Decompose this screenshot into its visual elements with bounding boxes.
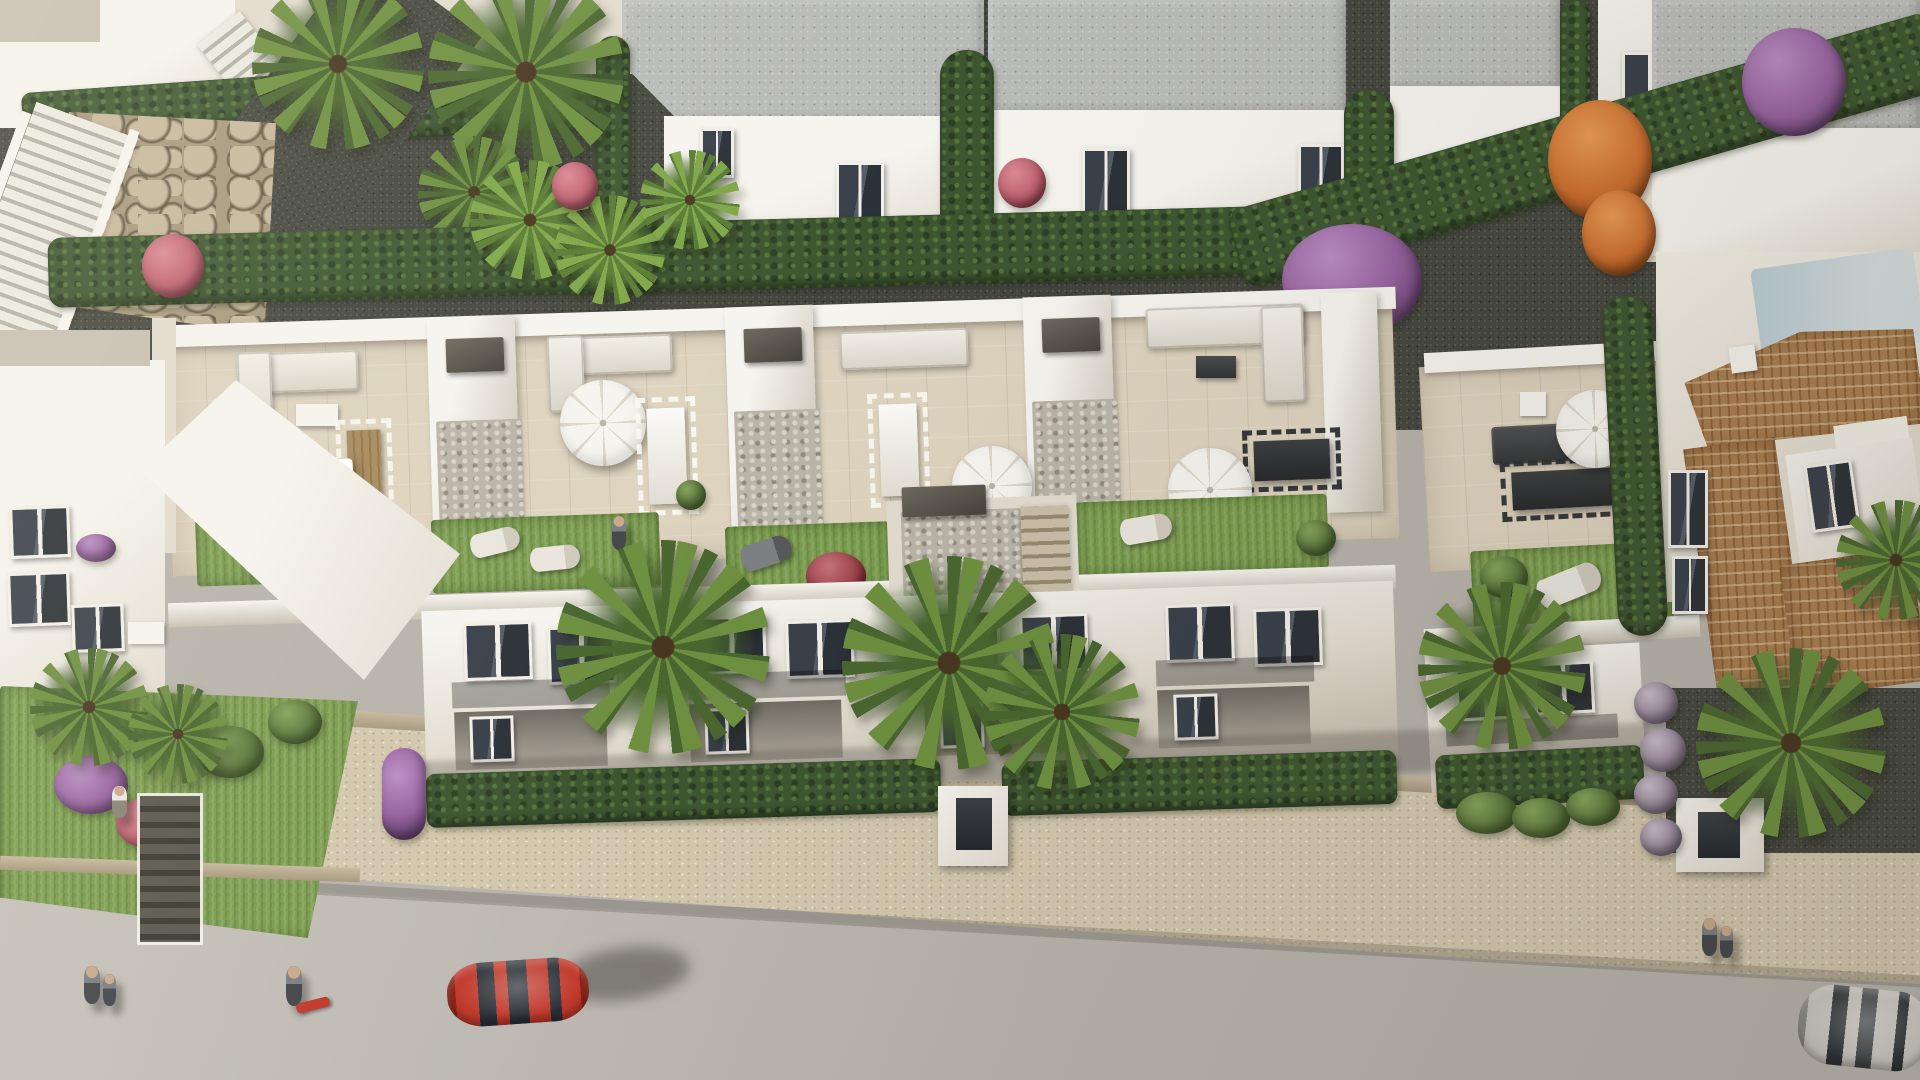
lavender-bush	[1640, 728, 1686, 772]
ac-unit	[743, 327, 802, 363]
building-top-left-roof	[0, 0, 100, 42]
window	[463, 621, 533, 681]
ac-unit	[902, 485, 987, 518]
garden-bush	[1566, 788, 1620, 826]
banana-plants	[640, 150, 740, 250]
window	[9, 505, 71, 559]
window	[7, 571, 71, 627]
lavender-bush	[1634, 682, 1678, 724]
red-car	[445, 955, 591, 1029]
flowering-shrub	[552, 162, 598, 210]
window	[71, 603, 125, 653]
potted-plant	[676, 480, 706, 510]
person	[612, 516, 626, 550]
palm-tree	[556, 540, 770, 754]
person	[84, 966, 100, 1004]
gate-door	[956, 798, 992, 850]
roof-lawn	[1075, 494, 1329, 577]
round-umbrella	[560, 380, 646, 466]
stairs-down	[1020, 505, 1071, 599]
ac-unit	[445, 337, 504, 373]
house-roof	[622, 0, 984, 122]
terrace-divider-wall	[1321, 291, 1384, 513]
person	[103, 974, 116, 1006]
dining-table	[1511, 467, 1613, 510]
flower-box	[76, 534, 116, 562]
orange-tree	[1582, 190, 1656, 276]
garden-bush	[268, 700, 322, 744]
palm-tree	[1418, 582, 1586, 750]
flowering-shrub	[998, 158, 1046, 208]
bougainvillea	[382, 748, 426, 840]
person	[1702, 918, 1717, 956]
chimney	[1728, 344, 1757, 373]
garden-bush	[1456, 792, 1518, 834]
left-building-roof	[0, 330, 150, 366]
stairs-to-street	[140, 796, 200, 942]
ac-unit	[128, 622, 164, 644]
balcony-shadow	[1156, 656, 1315, 687]
palm-tree	[984, 634, 1140, 790]
palm-tree	[128, 684, 228, 784]
lavender-bush	[1634, 774, 1678, 814]
coffee-table	[296, 404, 338, 426]
house-roof	[1390, 0, 1560, 90]
house-roof	[988, 0, 1346, 114]
window	[1668, 470, 1708, 548]
garden-bush	[1512, 798, 1570, 838]
garden-bush	[1296, 520, 1336, 556]
ac-unit	[1041, 317, 1100, 353]
window	[1165, 603, 1235, 663]
outdoor-sofa	[1260, 305, 1305, 402]
pebble-patio	[734, 409, 824, 530]
palm-tree	[1696, 648, 1886, 838]
dining-table	[1253, 439, 1330, 482]
window	[1173, 693, 1218, 740]
window	[1672, 556, 1708, 614]
window	[469, 715, 514, 762]
aerial-render-scene	[0, 0, 1920, 1080]
dining-table	[878, 403, 919, 496]
person	[112, 786, 127, 818]
outdoor-sofa	[839, 328, 968, 370]
coffee-table	[1196, 356, 1236, 378]
bougainvillea	[1742, 28, 1846, 136]
flowering-shrub	[142, 234, 204, 298]
person	[1720, 926, 1733, 958]
lavender-bush	[1640, 818, 1682, 856]
person	[286, 966, 302, 1006]
side-table	[1520, 392, 1546, 416]
